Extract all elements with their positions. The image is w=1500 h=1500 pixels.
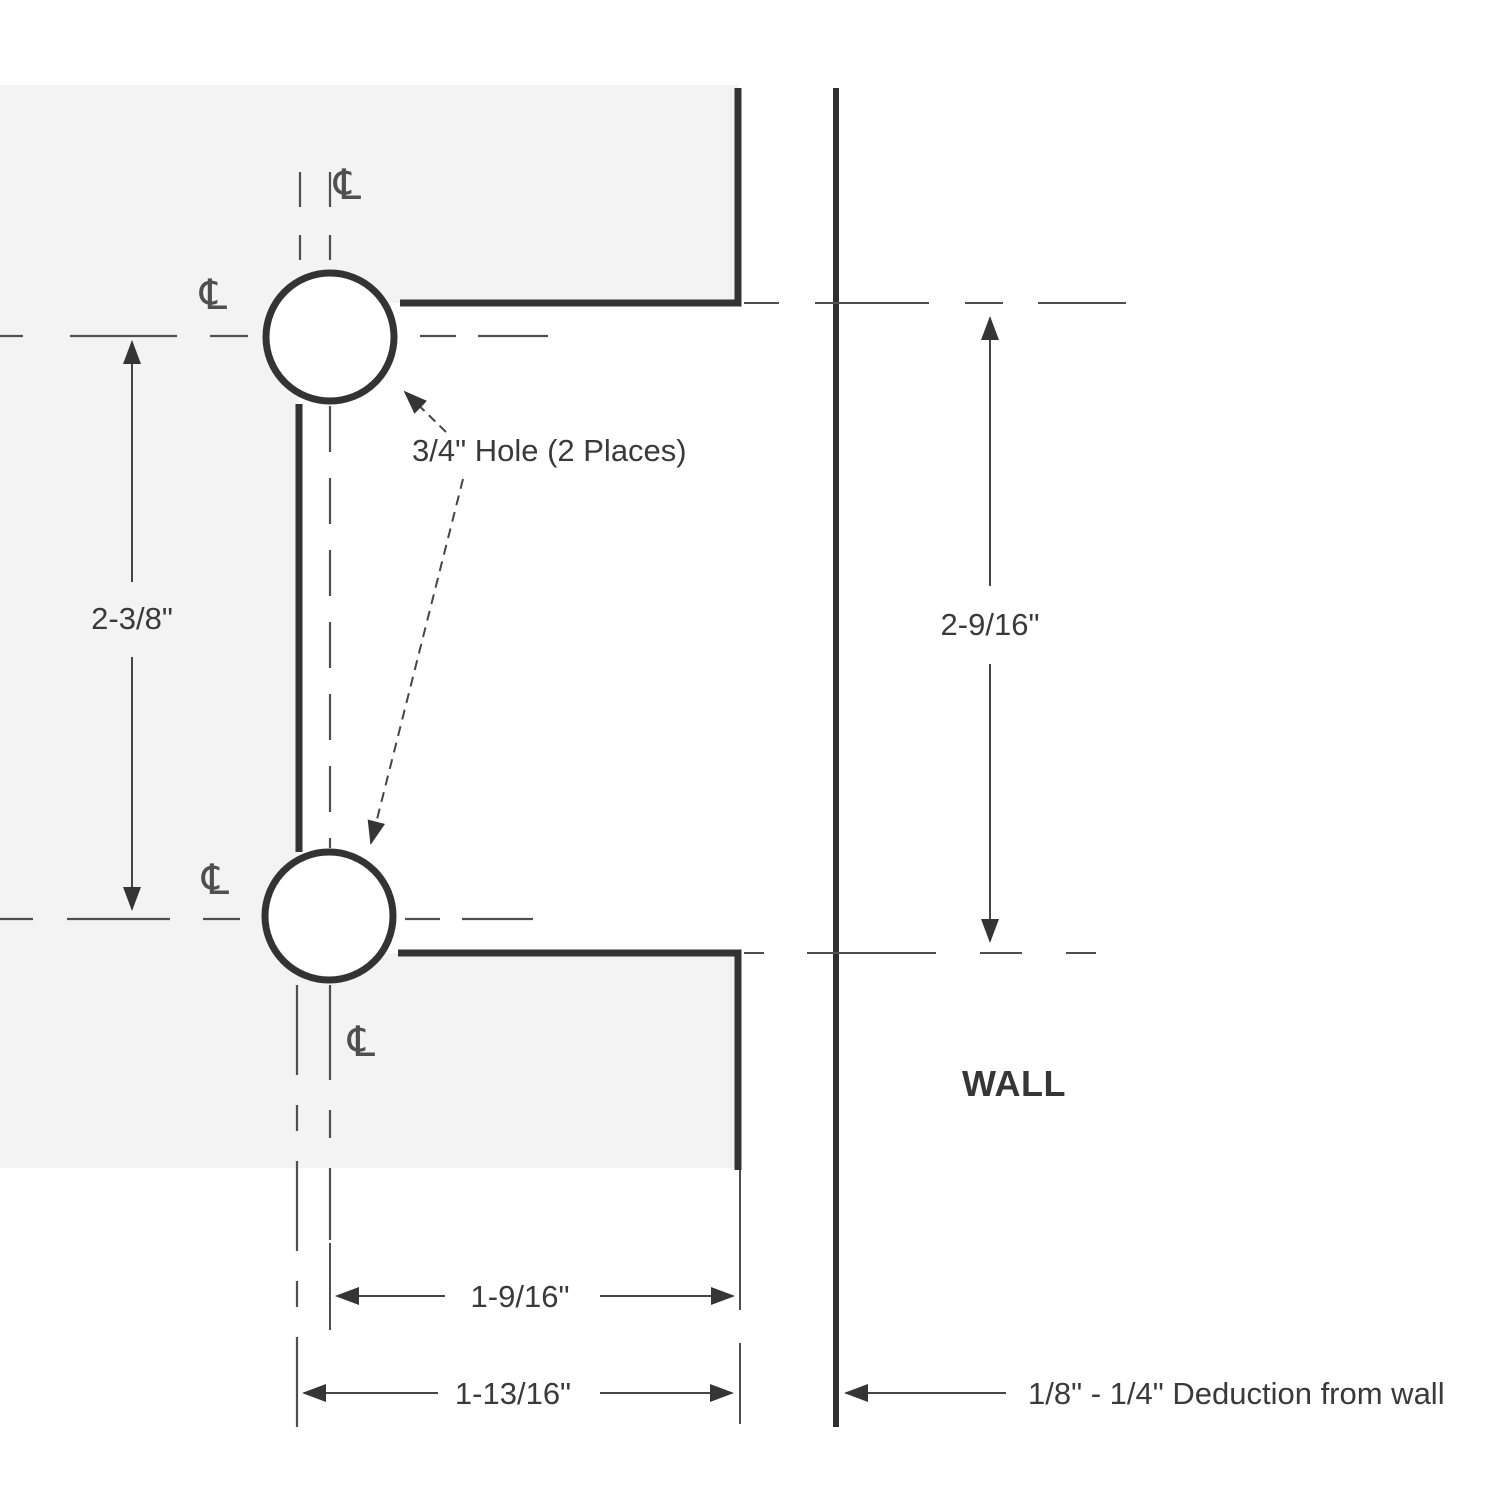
deduction-note-label: 1/8" - 1/4" Deduction from wall <box>1028 1376 1445 1412</box>
glass-notch-cutout <box>299 303 738 953</box>
centerline-symbol-top: ℄ <box>334 164 361 206</box>
centerline-symbol-left-top: ℄ <box>200 274 227 316</box>
centerline-symbol-bottom: ℄ <box>348 1021 375 1063</box>
centerline-symbol-left-bottom: ℄ <box>202 859 229 901</box>
drawing <box>0 0 1500 1500</box>
hole-bottom <box>265 852 393 980</box>
dim-hole-spacing-label: 2-3/8" <box>52 601 212 637</box>
dim-cutout-depth-label: 1-13/16" <box>433 1376 593 1412</box>
wall-label: WALL <box>962 1063 1066 1104</box>
hole-note-label: 3/4" Hole (2 Places) <box>412 433 687 469</box>
hinge-template-diagram: 3/4" Hole (2 Places) 2-3/8" 2-9/16" 1-9/… <box>0 0 1500 1500</box>
dim-cutout-height-label: 2-9/16" <box>910 607 1070 643</box>
hole-top <box>266 273 394 401</box>
dim-hole-offset-label: 1-9/16" <box>440 1279 600 1315</box>
